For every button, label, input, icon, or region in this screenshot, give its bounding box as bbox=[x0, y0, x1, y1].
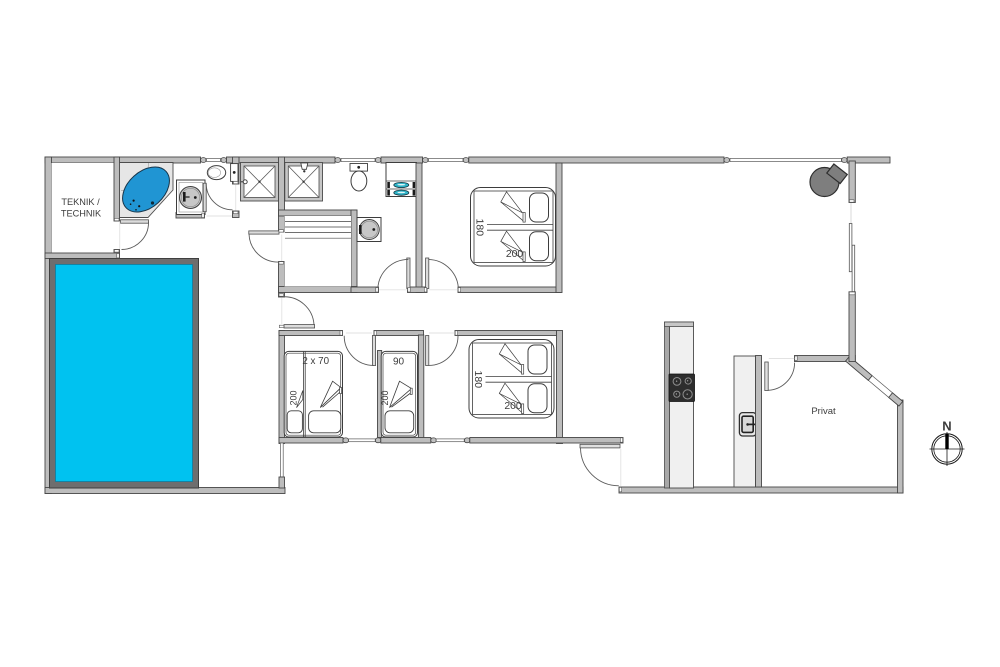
svg-text:2 x 70: 2 x 70 bbox=[302, 356, 329, 367]
svg-text:90: 90 bbox=[393, 357, 405, 368]
svg-text:200: 200 bbox=[380, 390, 390, 405]
svg-text:Privat: Privat bbox=[811, 406, 836, 417]
svg-text:200: 200 bbox=[289, 390, 299, 405]
svg-text:N: N bbox=[942, 419, 951, 434]
svg-text:180: 180 bbox=[474, 219, 486, 237]
svg-text:TEKNIK /: TEKNIK / bbox=[61, 197, 100, 207]
svg-text:TECHNIK: TECHNIK bbox=[61, 209, 102, 219]
svg-text:200: 200 bbox=[506, 249, 524, 260]
